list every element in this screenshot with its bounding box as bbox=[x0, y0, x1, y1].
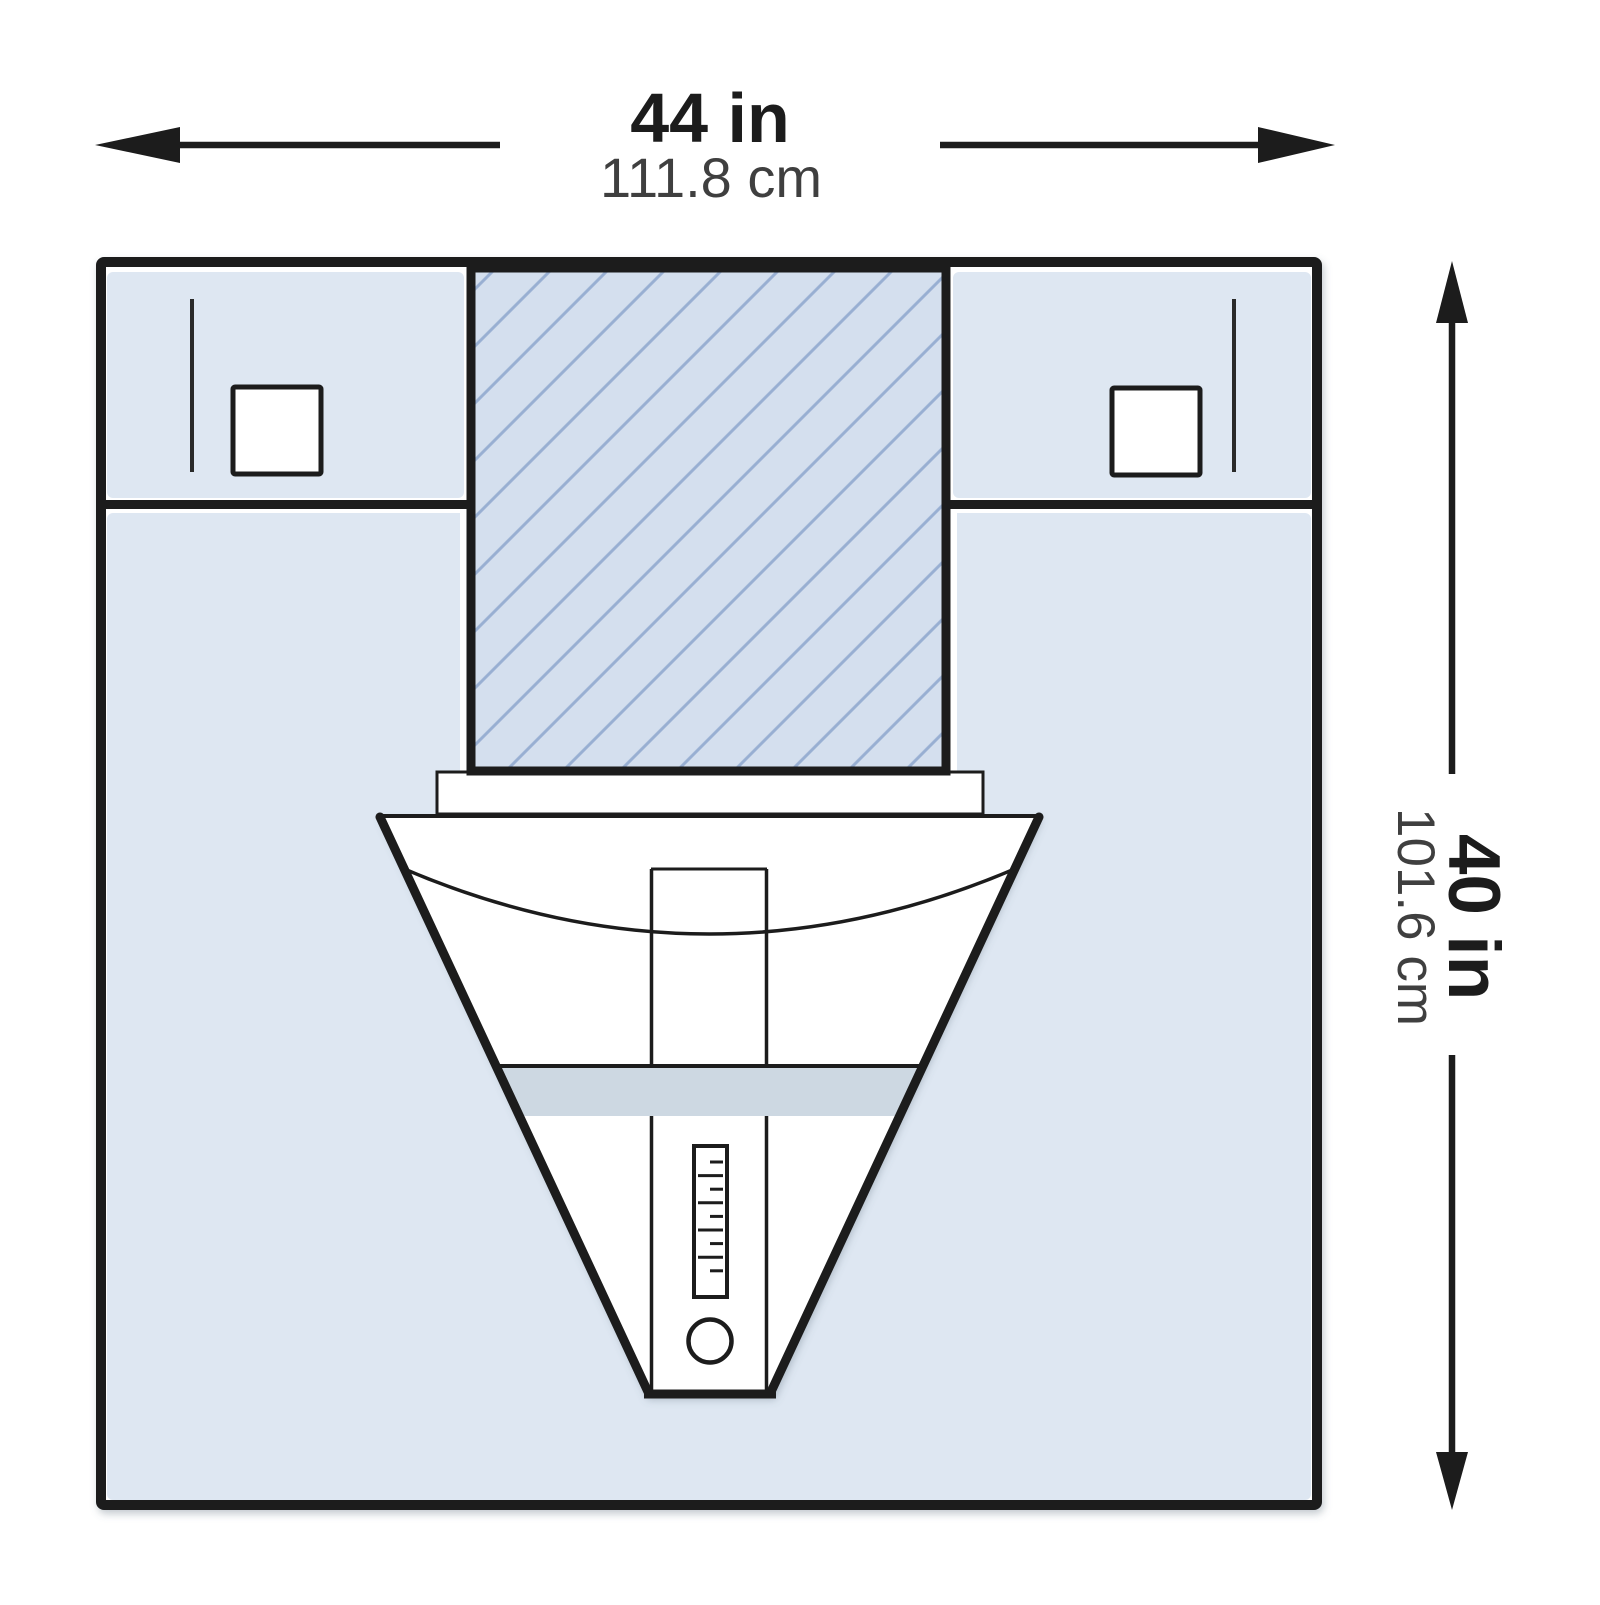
svg-text:101.6 cm: 101.6 cm bbox=[1386, 808, 1445, 1026]
svg-text:111.8 cm: 111.8 cm bbox=[600, 146, 822, 209]
